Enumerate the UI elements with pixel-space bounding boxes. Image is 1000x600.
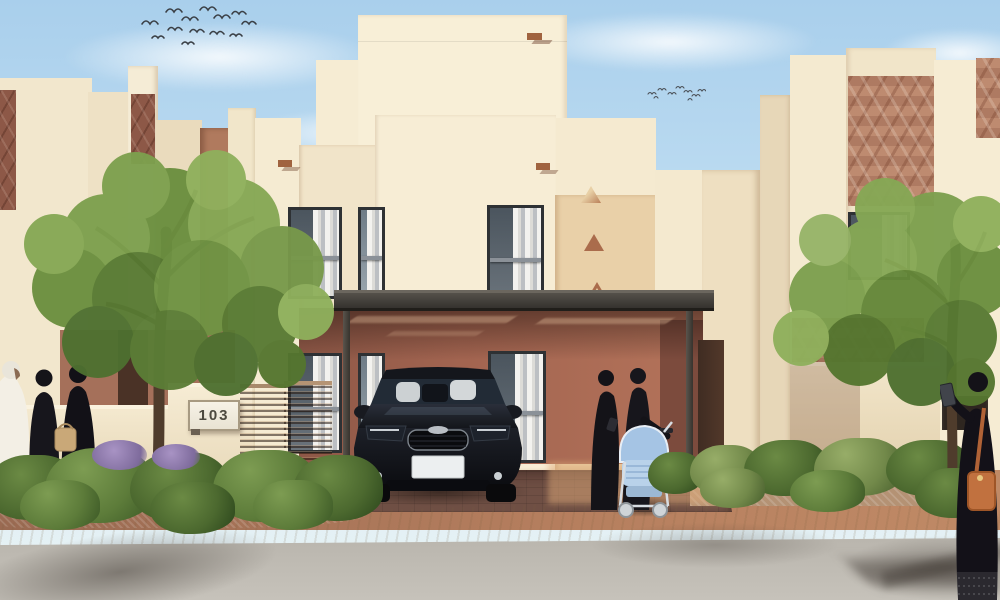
scene-root: 103 <box>0 0 1000 600</box>
woman-head <box>630 368 646 384</box>
car-headlight <box>470 426 510 441</box>
scupper-shadow <box>539 170 558 174</box>
entry-door <box>698 340 724 462</box>
shrub <box>150 482 235 534</box>
lavender-shrub <box>92 440 147 470</box>
carport-canopy <box>334 290 714 311</box>
fog-light <box>494 472 502 480</box>
car-headlight <box>366 426 406 441</box>
bird-flock-small <box>646 82 706 104</box>
kia-badge <box>428 426 448 434</box>
tree-foliage <box>24 150 334 396</box>
tree-shadow-road <box>590 522 840 568</box>
bird-flock-large <box>138 4 266 52</box>
shrub <box>20 480 100 530</box>
woman-head <box>968 372 988 392</box>
scupper-shadow <box>531 40 552 44</box>
license-plate <box>412 456 464 478</box>
car-roof <box>381 367 495 379</box>
roof-scupper <box>536 163 550 170</box>
upper-window <box>487 205 544 303</box>
stroller-wheel <box>653 503 667 517</box>
lavender-shrub <box>152 444 200 470</box>
woman-taking-photo <box>940 366 1000 600</box>
shrub <box>253 480 333 530</box>
stroller-wheel <box>619 503 633 517</box>
sunlight-streak <box>536 318 675 324</box>
shrub <box>700 468 765 508</box>
sunlight-streak <box>386 331 483 336</box>
roof-scupper <box>527 33 542 40</box>
right-villa-mosaic-strip <box>976 58 1000 138</box>
smartphone <box>940 383 956 407</box>
car-tire <box>486 484 516 502</box>
left-villa-tile-strip <box>0 90 16 210</box>
woman-head <box>598 370 614 386</box>
upper-window-narrow <box>358 207 385 299</box>
sunlight-streak <box>347 316 517 323</box>
